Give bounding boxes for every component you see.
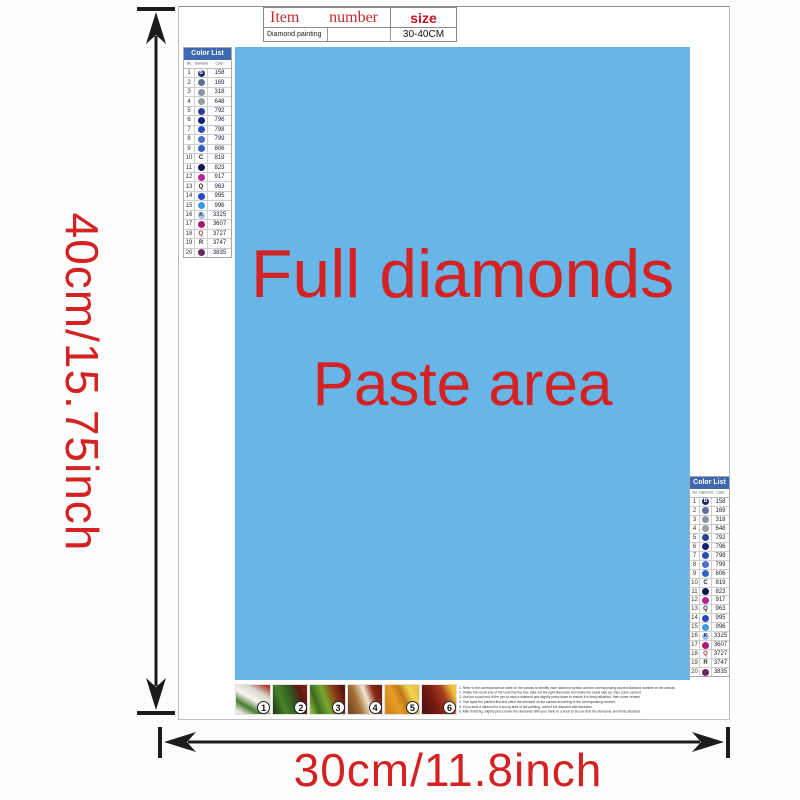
diamond-symbol (195, 192, 208, 200)
dmc-color-code: 3727 (208, 230, 231, 238)
dmc-color-code: 819 (712, 579, 729, 587)
color-list-rows: 1B1582169331846485792679677988799980610C… (690, 498, 729, 676)
color-row-number: 7 (690, 552, 700, 560)
color-list-title: Color List (184, 48, 231, 60)
color-row-number: 12 (184, 173, 195, 181)
diamond-symbol-circle: K (198, 212, 205, 219)
color-row-number: 19 (184, 239, 195, 247)
diamond-symbol-circle (702, 525, 709, 532)
dmc-color-code: 169 (208, 78, 231, 86)
vertical-dimension-label: 40cm/15.75inch (55, 213, 109, 552)
color-list-row: 7798 (690, 552, 729, 561)
diamond-symbol-circle (198, 117, 205, 124)
color-list-row: 16K3325 (690, 632, 729, 641)
dmc-color-code: 917 (208, 173, 231, 181)
diamond-symbol-circle (702, 624, 709, 631)
color-list-column-header: No. Diamond Color (184, 60, 231, 69)
diamond-symbol (700, 596, 712, 604)
diamond-symbol-circle (198, 202, 205, 209)
diamond-symbol (195, 145, 208, 153)
color-list-row: 1B158 (690, 498, 729, 507)
color-row-number: 17 (184, 220, 195, 228)
diamond-symbol (195, 97, 208, 105)
color-list-row: 203835 (184, 249, 231, 257)
color-row-number: 14 (184, 192, 195, 200)
color-list-row: 18Q3727 (690, 650, 729, 659)
color-row-number: 4 (690, 525, 700, 533)
color-row-number: 13 (184, 182, 195, 190)
color-row-number: 17 (690, 641, 700, 649)
color-list-row: 5792 (690, 534, 729, 543)
color-row-number: 13 (690, 605, 700, 613)
dmc-color-code: 995 (712, 614, 729, 622)
col-diamond-label: Diamond (198, 62, 205, 66)
color-row-number: 9 (184, 145, 195, 153)
diamond-symbol-circle (702, 516, 709, 523)
diamond-symbol-circle (198, 249, 205, 256)
color-list-row: 12917 (690, 596, 729, 605)
diamond-symbol-circle (702, 615, 709, 622)
color-list-row: 1B158 (184, 69, 231, 78)
dmc-color-code: 792 (712, 534, 729, 542)
color-list-row: 173607 (690, 641, 729, 650)
diamond-symbol: C (195, 154, 208, 162)
dmc-color-code: 799 (712, 561, 729, 569)
diamond-symbol (700, 552, 712, 560)
diamond-symbol (195, 78, 208, 86)
diamond-symbol (700, 623, 712, 631)
diamond-symbol-circle (198, 174, 205, 181)
dmc-color-code: 995 (208, 192, 231, 200)
diamond-symbol-circle (702, 561, 709, 568)
color-list-row: 9806 (184, 145, 231, 154)
color-list-row: 4648 (184, 97, 231, 106)
color-list-row: 11823 (184, 164, 231, 173)
dmc-color-code: 798 (712, 552, 729, 560)
dmc-color-code: 798 (208, 126, 231, 134)
diamond-symbol: Q (195, 230, 208, 238)
diamond-symbol: B (700, 498, 712, 506)
diamond-symbol (195, 88, 208, 96)
color-list-row: 9806 (690, 570, 729, 579)
diamond-symbol (700, 534, 712, 542)
diamond-symbol (700, 516, 712, 524)
dmc-color-code: 963 (208, 182, 231, 190)
color-list-row: 19R3747 (184, 239, 231, 248)
diamond-symbol (700, 614, 712, 622)
color-list-row: 11823 (690, 588, 729, 597)
step-thumbnail-6: 6 (421, 684, 457, 715)
dmc-color-code: 996 (208, 201, 231, 209)
diamond-symbol (700, 525, 712, 533)
step-number-badge: 6 (443, 701, 456, 714)
number-header-label: number (329, 9, 378, 27)
item-table: Item number size Diamond painting 30-40C… (263, 7, 457, 42)
color-list-row: 3318 (184, 88, 231, 97)
step-number-badge: 2 (294, 701, 307, 714)
color-list-row: 173607 (184, 220, 231, 229)
color-list-left: Color List No. Diamond Color 1B158216933… (183, 47, 232, 258)
color-list-row: 12917 (184, 173, 231, 182)
color-row-number: 16 (690, 632, 700, 640)
dmc-color-code: 799 (208, 135, 231, 143)
color-row-number: 1 (184, 69, 195, 77)
diamond-symbol (195, 107, 208, 115)
diamond-symbol-circle (198, 89, 205, 96)
dmc-color-code: 3607 (208, 220, 231, 228)
color-list-row: 4648 (690, 525, 729, 534)
item-number-cell (328, 28, 391, 41)
dmc-color-code: 169 (712, 507, 729, 515)
color-row-number: 7 (184, 126, 195, 134)
diamond-symbol: Q (700, 605, 712, 613)
diamond-symbol (700, 641, 712, 649)
diamond-symbol-circle (702, 507, 709, 514)
color-row-number: 19 (690, 659, 700, 667)
diamond-symbol (700, 561, 712, 569)
diamond-symbol-circle (702, 588, 709, 595)
step-thumbnail-1: 1 (235, 684, 271, 715)
item-header-label: Item (270, 9, 299, 27)
color-list-row: 18Q3727 (184, 230, 231, 239)
color-row-number: 12 (690, 596, 700, 604)
color-list-title: Color List (690, 477, 729, 489)
diamond-symbol-circle: B (702, 498, 709, 505)
color-list-column-header: No. Diamond Color (690, 489, 729, 498)
diamond-symbol (700, 570, 712, 578)
vertical-dimension-arrow (137, 7, 175, 715)
color-row-number: 2 (690, 507, 700, 515)
diamond-symbol-circle (702, 552, 709, 559)
color-row-number: 8 (184, 135, 195, 143)
color-list-row: 14995 (184, 192, 231, 201)
instruction-line: 6. After finishing, slightly press down … (459, 710, 690, 715)
step-thumbnail-4: 4 (347, 684, 383, 715)
color-row-number: 9 (690, 570, 700, 578)
diamond-symbol-circle (198, 108, 205, 115)
color-list-row: 6796 (184, 116, 231, 125)
dmc-color-code: 996 (712, 623, 729, 631)
dmc-color-code: 318 (712, 516, 729, 524)
color-row-number: 8 (690, 561, 700, 569)
dmc-color-code: 806 (208, 145, 231, 153)
diamond-symbol (700, 668, 712, 676)
color-list-row: 2169 (690, 507, 729, 516)
color-list-row: 10C819 (184, 154, 231, 163)
step-thumbnail-3: 3 (309, 684, 345, 715)
diamond-symbol-circle (702, 543, 709, 550)
color-list-row: 6796 (690, 543, 729, 552)
color-list-row: 8799 (184, 135, 231, 144)
color-list-row: 5792 (184, 107, 231, 116)
color-row-number: 14 (690, 614, 700, 622)
dmc-color-code: 796 (208, 116, 231, 124)
color-list-row: 13Q963 (690, 605, 729, 614)
diamond-symbol (195, 173, 208, 181)
color-row-number: 6 (184, 116, 195, 124)
diamond-symbol (700, 588, 712, 596)
diamond-symbol: C (700, 579, 712, 587)
color-row-number: 5 (690, 534, 700, 542)
diamond-symbol: Q (195, 182, 208, 190)
dmc-color-code: 3607 (712, 641, 729, 649)
color-list-row: 15996 (690, 623, 729, 632)
color-row-number: 5 (184, 107, 195, 115)
color-list-rows: 1B1582169331846485792679677988799980610C… (184, 69, 231, 257)
step-thumbnails: 1 2 3 4 5 6 (235, 684, 457, 715)
color-list-row: 7798 (184, 126, 231, 135)
dmc-color-code: 3325 (208, 211, 231, 219)
diamond-symbol-circle: B (198, 70, 205, 77)
step-number-badge: 5 (406, 701, 419, 714)
diamond-symbol: B (195, 69, 208, 77)
color-list-row: 3318 (690, 516, 729, 525)
diamond-symbol (195, 135, 208, 143)
dmc-color-code: 963 (712, 605, 729, 613)
product-diagram: Item number size Diamond painting 30-40C… (0, 0, 800, 800)
horizontal-dimension-label: 30cm/11.8inch (294, 743, 603, 797)
color-row-number: 10 (690, 579, 700, 587)
diamond-symbol-circle (198, 221, 205, 228)
color-row-number: 18 (184, 230, 195, 238)
diamond-symbol-circle: K (702, 633, 709, 640)
color-row-number: 3 (184, 88, 195, 96)
step-thumbnail-5: 5 (384, 684, 420, 715)
diamond-symbol-circle (198, 126, 205, 133)
color-row-number: 16 (184, 211, 195, 219)
diamond-symbol: R (195, 239, 208, 247)
color-row-number: 10 (184, 154, 195, 162)
diamond-symbol: K (195, 211, 208, 219)
step-number-badge: 1 (257, 701, 270, 714)
col-color-label: Color (213, 62, 226, 66)
diamond-symbol-circle (702, 597, 709, 604)
diamond-symbol-circle (702, 669, 709, 676)
item-number-header-cell: Item number (264, 8, 391, 27)
color-row-number: 3 (690, 516, 700, 524)
paste-area-text-layer: Full diamonds Paste area (235, 47, 690, 680)
color-row-number: 4 (184, 97, 195, 105)
diamond-symbol (700, 507, 712, 515)
diamond-symbol (195, 220, 208, 228)
diamond-symbol (195, 126, 208, 134)
color-list-row: 10C819 (690, 579, 729, 588)
diamond-symbol-circle (702, 570, 709, 577)
dmc-color-code: 648 (712, 525, 729, 533)
dmc-color-code: 3325 (712, 632, 729, 640)
dmc-color-code: 819 (208, 154, 231, 162)
diamond-symbol (700, 543, 712, 551)
size-header-label: size (391, 8, 456, 27)
color-list-right: Color List No. Diamond Color 1B158216933… (689, 476, 730, 677)
step-number-badge: 3 (332, 701, 345, 714)
color-list-row: 203835 (690, 668, 729, 676)
color-list-row: 13Q963 (184, 182, 231, 191)
diamond-symbol-circle (198, 164, 205, 171)
paste-area-title: Full diamonds (235, 235, 690, 313)
color-list-row: 8799 (690, 561, 729, 570)
dmc-color-code: 3835 (712, 668, 729, 676)
color-row-number: 6 (690, 543, 700, 551)
color-row-number: 2 (184, 78, 195, 86)
dmc-color-code: 158 (208, 69, 231, 77)
color-list-row: 16K3325 (184, 211, 231, 220)
diamond-symbol-circle (198, 193, 205, 200)
color-row-number: 20 (690, 668, 700, 676)
color-row-number: 11 (690, 588, 700, 596)
color-row-number: 15 (184, 201, 195, 209)
instruction-text: 1. Refer to the correspondence table on … (459, 686, 690, 715)
dmc-color-code: 792 (208, 107, 231, 115)
color-list-row: 15996 (184, 201, 231, 210)
step-number-badge: 4 (369, 701, 382, 714)
dmc-color-code: 3727 (712, 650, 729, 658)
diamond-symbol-circle (702, 642, 709, 649)
dmc-color-code: 648 (208, 97, 231, 105)
dmc-color-code: 158 (712, 498, 729, 506)
color-row-number: 11 (184, 164, 195, 172)
dmc-color-code: 3747 (712, 659, 729, 667)
diamond-symbol-circle (702, 534, 709, 541)
diamond-symbol (195, 116, 208, 124)
dmc-color-code: 318 (208, 88, 231, 96)
item-table-header: Item number size (264, 8, 456, 28)
col-no-label: No. (186, 62, 192, 66)
col-no-label: No. (692, 491, 698, 495)
diamond-symbol (195, 164, 208, 172)
dmc-color-code: 823 (712, 588, 729, 596)
col-color-label: Color (716, 491, 725, 495)
diamond-symbol-circle (198, 136, 205, 143)
color-row-number: 20 (184, 249, 195, 257)
paste-area-subtitle: Paste area (235, 349, 690, 420)
color-list-row: 19R3747 (690, 659, 729, 668)
dmc-color-code: 917 (712, 596, 729, 604)
diamond-symbol-circle (198, 145, 205, 152)
item-size-cell: 30-40CM (391, 28, 456, 41)
color-row-number: 15 (690, 623, 700, 631)
diamond-symbol (195, 249, 208, 257)
dmc-color-code: 806 (712, 570, 729, 578)
diamond-symbol-circle (198, 98, 205, 105)
item-table-row: Diamond painting 30-40CM (264, 28, 456, 41)
diamond-symbol (195, 201, 208, 209)
color-list-row: 2169 (184, 78, 231, 87)
step-thumbnail-2: 2 (272, 684, 308, 715)
diamond-symbol: K (700, 632, 712, 640)
diamond-symbol: R (700, 659, 712, 667)
color-row-number: 1 (690, 498, 700, 506)
dmc-color-code: 3747 (208, 239, 231, 247)
col-diamond-label: Diamond (703, 491, 710, 495)
dmc-color-code: 3835 (208, 249, 231, 257)
dmc-color-code: 796 (712, 543, 729, 551)
diamond-symbol: Q (700, 650, 712, 658)
diamond-symbol-circle (198, 79, 205, 86)
item-name-cell: Diamond painting (264, 28, 328, 41)
color-row-number: 18 (690, 650, 700, 658)
dmc-color-code: 823 (208, 164, 231, 172)
color-list-row: 14995 (690, 614, 729, 623)
